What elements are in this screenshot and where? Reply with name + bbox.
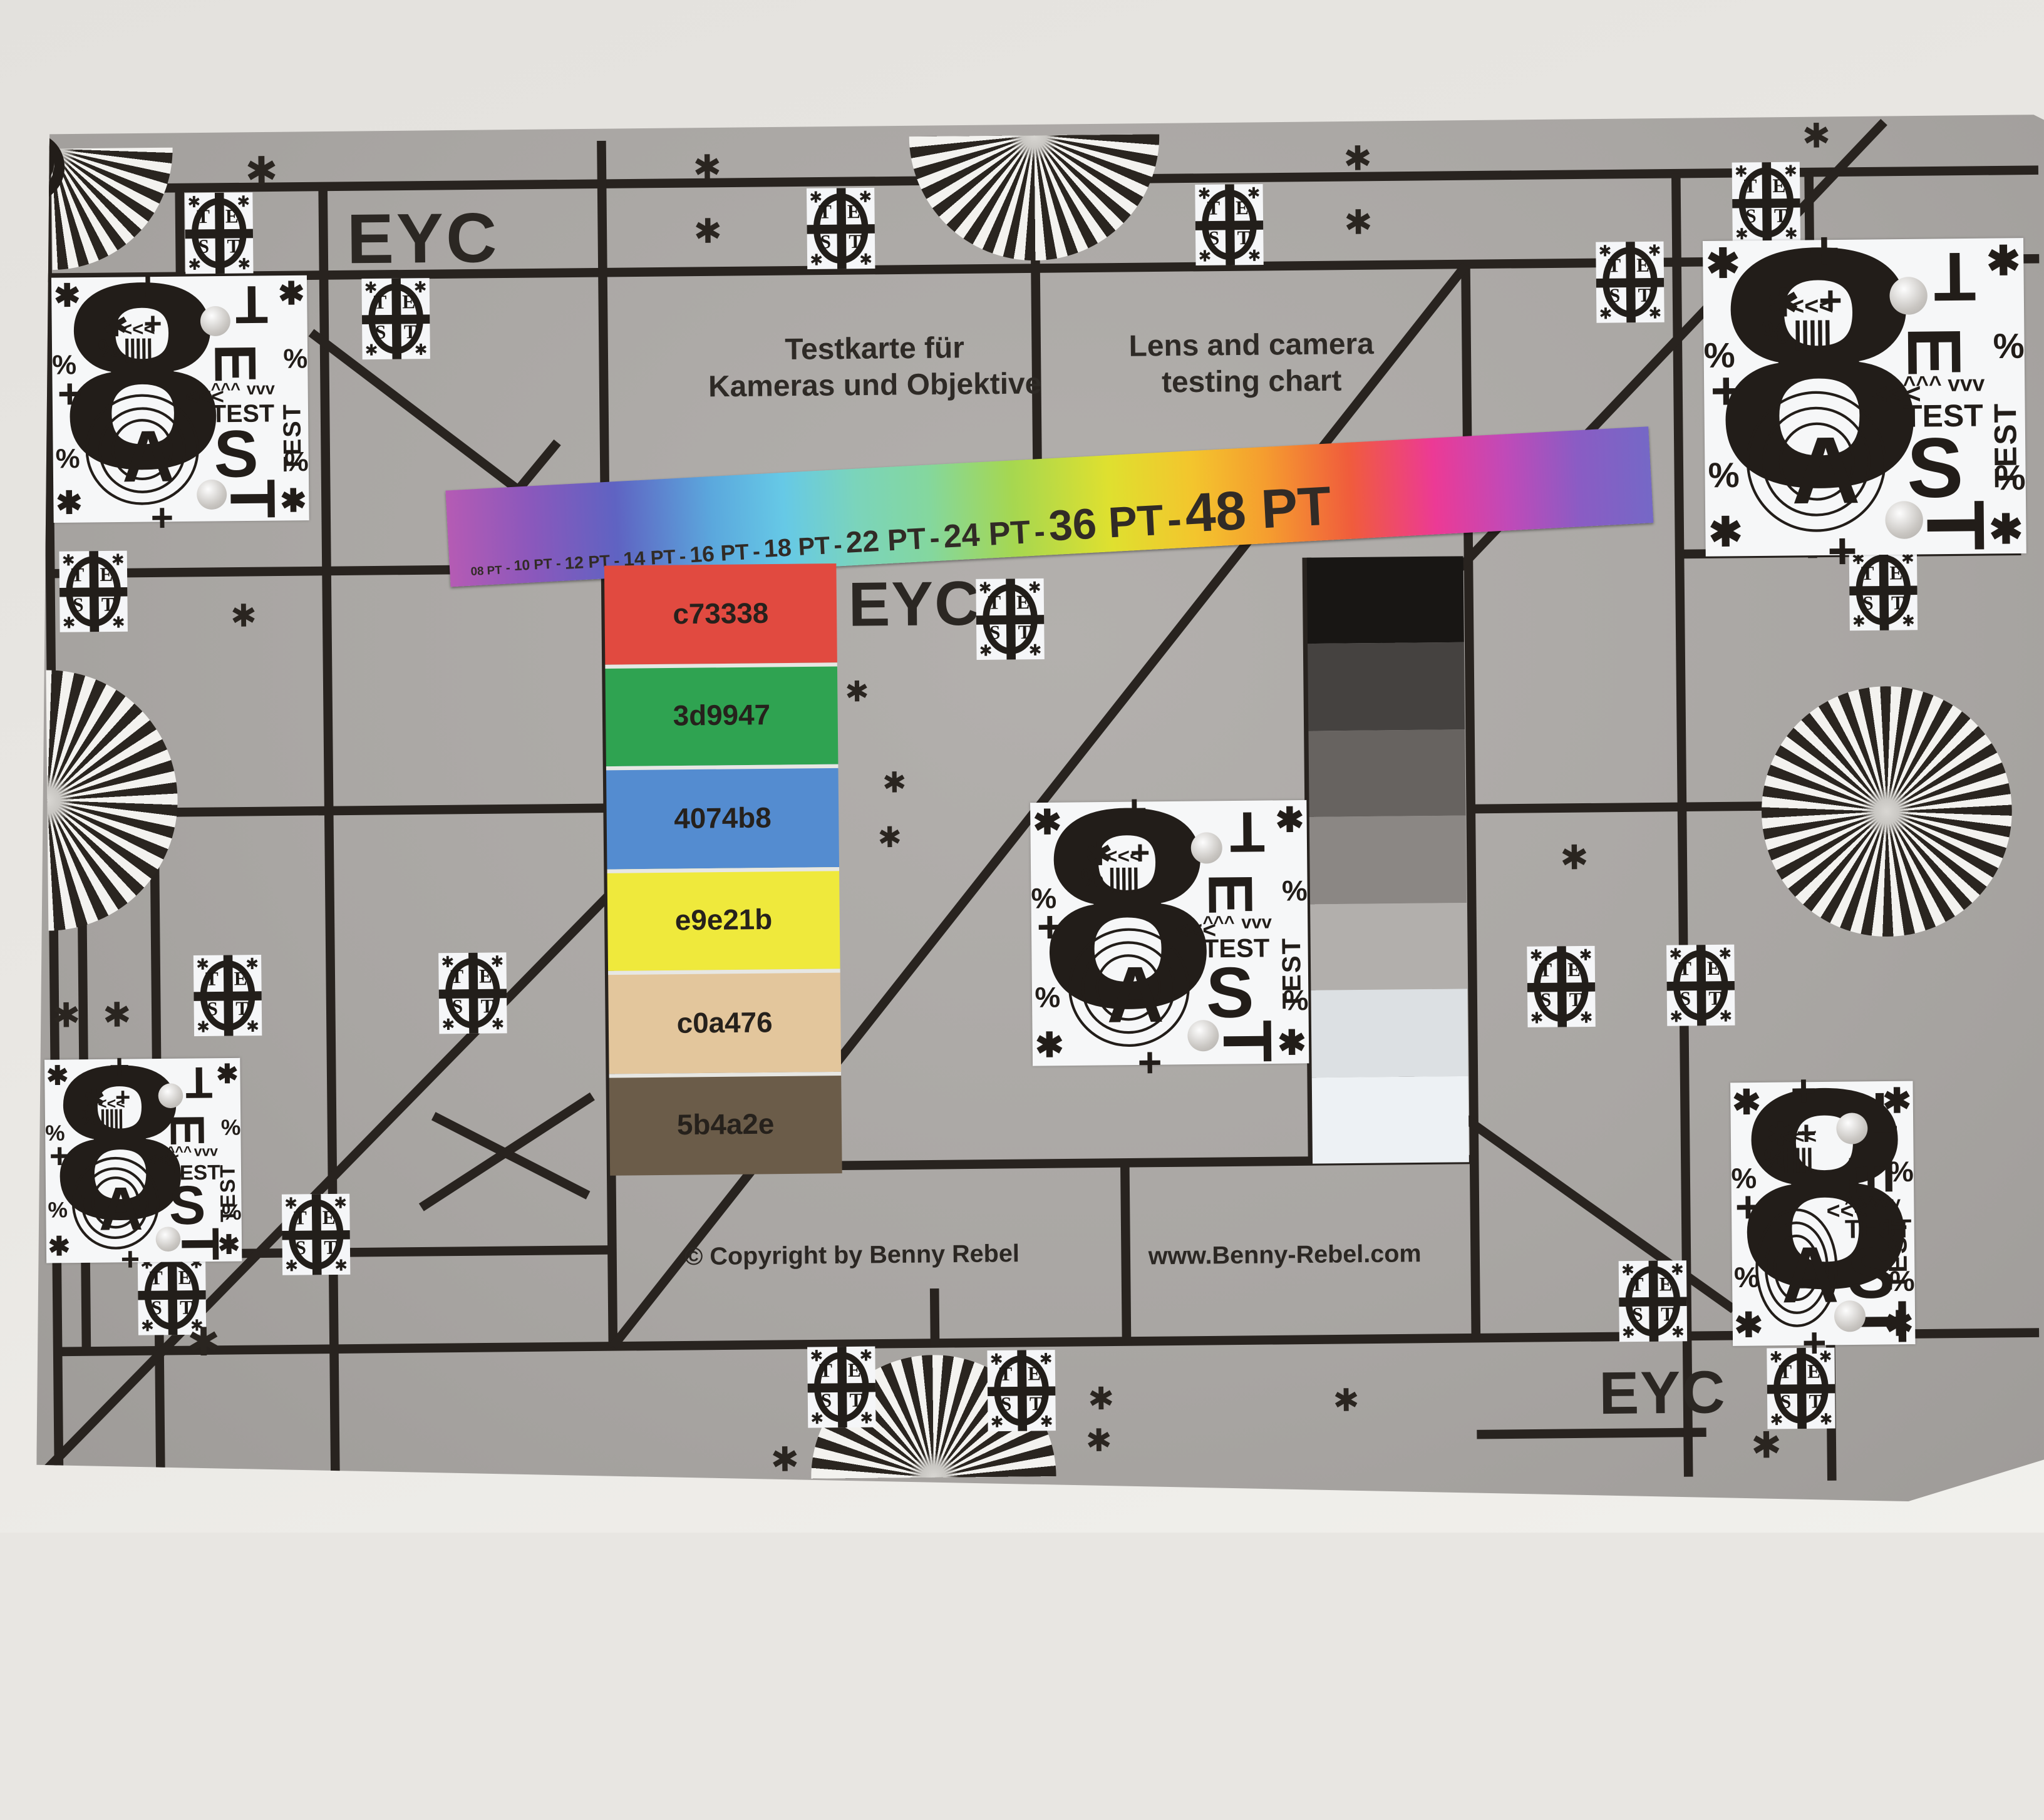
block-percent-left2: % <box>1035 982 1060 1016</box>
block-silver-dot <box>1885 501 1923 539</box>
test-target-circle: ✱✱✱✱TEST <box>194 955 262 1036</box>
block-chevrons-down: vvv <box>1241 911 1272 932</box>
block-plus-top: + <box>1790 1066 1817 1118</box>
tile-letter-e: E <box>848 1361 861 1384</box>
tile-letter-e: E <box>1636 256 1649 279</box>
block-column-e: E <box>1891 326 1978 378</box>
tile-letter-s: S <box>1780 1392 1792 1415</box>
grayscale-step-wedge <box>1307 556 1469 1163</box>
title-german: Testkarte für Kameras und Objektive <box>697 328 1052 404</box>
block-chevrons-down: vvv <box>247 379 275 399</box>
website-text: www.Benny-Rebel.com <box>1115 1240 1455 1272</box>
block-column-t: T <box>235 273 269 334</box>
tile-asterisk: ✱ <box>490 954 503 969</box>
block-plus-bottom: + <box>120 1242 140 1280</box>
tile-letter-e: E <box>847 202 860 225</box>
block-corner-asterisk: ✱ <box>1277 1023 1306 1064</box>
pt-size-separator: - <box>752 542 760 562</box>
tile-letter-e: E <box>225 207 239 229</box>
block-corner-asterisk: ✱ <box>48 1230 70 1263</box>
grayscale-step <box>1311 989 1468 1077</box>
tile-letter-s: S <box>452 997 463 1020</box>
tile-letter-e: E <box>1028 1364 1041 1387</box>
grayscale-step <box>1310 902 1467 990</box>
tile-letter-s: S <box>1632 1305 1643 1328</box>
asterisk-mark: ✱ <box>1086 1426 1112 1458</box>
pt-size-separator: - <box>679 548 686 566</box>
tile-cross-horizontal <box>1619 1296 1686 1306</box>
block-percent-left2: % <box>48 1198 68 1224</box>
tile-asterisk: ✱ <box>1671 1262 1684 1277</box>
test-target-circle: ✱✱✱✱TEST <box>1849 549 1918 630</box>
tile-letter-t: T <box>1678 959 1691 982</box>
color-swatch-c73338: c73338 <box>604 563 837 664</box>
block-percent-right: % <box>1282 874 1308 908</box>
tile-letter-e: E <box>1659 1275 1672 1297</box>
tile-letter-e: E <box>323 1208 336 1231</box>
tile-letter-t: T <box>1861 564 1874 587</box>
block-percent-right2: % <box>1994 459 2026 500</box>
pt-size-separator: - <box>505 563 510 575</box>
tile-letter-t: T <box>1778 1362 1792 1385</box>
tile-asterisk: ✱ <box>334 1195 347 1211</box>
test-pattern-block: 8✱%<<<+|||||A<<<T+E^^^vvvTESTST+TEST✱✱✱✱… <box>51 275 309 523</box>
tile-letter-t2: T <box>1030 1394 1043 1417</box>
block-silver-dot <box>200 306 230 336</box>
block-silver-dot <box>1187 1019 1219 1051</box>
tile-letter-t2: T <box>404 322 417 345</box>
block-corner-asterisk: ✱ <box>1885 1304 1914 1345</box>
block-bars: ||||| <box>1108 865 1138 895</box>
tile-letter-t: T <box>819 1361 832 1384</box>
tile-letter-e: E <box>1236 198 1249 221</box>
tile-cross-horizontal <box>362 314 430 324</box>
tile-cross-horizontal <box>808 1382 875 1392</box>
tile-letter-t2: T <box>1638 286 1651 309</box>
block-plus-left: + <box>1710 361 1742 422</box>
pt-size-label: 24 PT <box>942 518 1031 552</box>
color-swatch-4074b8: 4074b8 <box>606 764 839 869</box>
block-column-e: E <box>159 1114 214 1147</box>
block-column-t: T <box>185 1056 213 1108</box>
title-english: Lens and camera testing chart <box>1088 325 1415 401</box>
tile-letter-t: T <box>1631 1275 1644 1298</box>
asterisk-mark: ✱ <box>1343 141 1372 176</box>
siemens-star-fan <box>1760 685 2013 937</box>
block-percent-right: % <box>1888 1154 1914 1189</box>
test-target-circle: ✱✱✱✱TEST <box>1666 945 1735 1026</box>
grayscale-step <box>1308 729 1465 818</box>
block-plus-left: + <box>49 1137 70 1178</box>
tile-cross-horizontal <box>1667 980 1735 990</box>
block-percent: % <box>1080 865 1104 895</box>
tile-letter-t: T <box>150 1268 163 1291</box>
swatch-hex-label: 5b4a2e <box>677 1108 775 1143</box>
asterisk-mark: ✱ <box>693 214 722 249</box>
tile-letter-t2: T <box>101 595 115 618</box>
tile-letter-t: T <box>818 202 832 225</box>
swatch-hex-label: e9e21b <box>675 903 773 938</box>
block-letter-a: A <box>1781 1229 1839 1321</box>
pt-size-separator: - <box>1166 500 1182 540</box>
eyc-label-bottom-right: EYC <box>1599 1357 1727 1428</box>
asterisk-mark: ✱ <box>877 823 902 852</box>
asterisk-mark: ✱ <box>1802 118 1831 153</box>
photo-of-test-chart: Testkarte für Kameras und Objektive Lens… <box>0 0 2044 1533</box>
test-target-circle: ✱✱✱✱TEST <box>807 1347 875 1428</box>
asterisk-mark: ✱ <box>103 998 132 1032</box>
tile-letter-t2: T <box>180 1298 193 1321</box>
tile-letter-t: T <box>197 207 210 230</box>
block-corner-asterisk: ✱ <box>1989 506 2023 553</box>
block-percent-right: % <box>1993 326 2025 367</box>
block-plus-top: + <box>109 1047 130 1087</box>
block-column-t: T <box>1229 798 1265 863</box>
tile-asterisk: ✱ <box>1028 580 1041 595</box>
asterisk-mark: ✱ <box>845 678 869 707</box>
block-corner-asterisk: ✱ <box>1276 800 1304 841</box>
pt-size-separator: - <box>1033 517 1046 547</box>
block-percent-right2: % <box>1283 984 1308 1019</box>
tile-letter-e: E <box>479 967 492 989</box>
block-silver-dot <box>1889 277 1927 315</box>
block-letter-a: A <box>1106 949 1164 1041</box>
block-chevrons-up: ^^^ <box>210 379 240 399</box>
tile-letter-s: S <box>1209 229 1220 251</box>
tile-letter-t2: T <box>849 1391 862 1414</box>
eyc-label-center: EYC <box>848 568 981 642</box>
grayscale-step <box>1308 643 1465 731</box>
tile-letter-t2: T <box>324 1238 337 1261</box>
tile-letter-t: T <box>450 967 463 990</box>
block-percent: % <box>80 1108 99 1132</box>
title-german-line2: Kameras und Objektive <box>698 364 1053 404</box>
tile-cross-horizontal <box>59 587 127 597</box>
test-target-circle: ✱✱✱✱TEST <box>1527 946 1595 1027</box>
pt-size-label: 18 PT <box>763 535 830 561</box>
block-corner-asterisk: ✱ <box>1734 1305 1763 1346</box>
block-corner-asterisk: ✱ <box>46 1059 68 1092</box>
tile-cross-horizontal <box>1849 585 1917 595</box>
block-corner-asterisk: ✱ <box>54 277 80 316</box>
block-plus-top: + <box>135 262 160 311</box>
block-plus-left: + <box>1036 902 1063 954</box>
block-chevrons-down: vvv <box>1870 1191 1901 1213</box>
tile-letter-s: S <box>375 323 386 346</box>
block-letter-a: A <box>121 414 175 499</box>
tile-cross-horizontal <box>1195 220 1263 230</box>
tile-asterisk: ✱ <box>1040 1351 1053 1367</box>
test-pattern-block: 8✱%<<<+|||||A<<<T+E^^^vvvTESTST+TEST✱✱✱✱… <box>1730 1081 1915 1346</box>
asterisk-mark: ✱ <box>245 153 278 193</box>
tile-letter-t2: T <box>1891 594 1904 616</box>
block-column-t2: T <box>1207 1019 1287 1062</box>
block-chevrons-up: ^^^ <box>1202 912 1234 933</box>
asterisk-mark: ✱ <box>882 769 907 798</box>
tile-letter-e: E <box>402 292 415 315</box>
asterisk-mark: ✱ <box>1344 205 1373 240</box>
block-corner-asterisk: ✱ <box>56 485 82 523</box>
test-target-circle: ✱✱✱✱TEST <box>1195 184 1263 265</box>
copyright-text: © Copyright by Benny Rebel <box>617 1240 1087 1273</box>
block-corner-asterisk: ✱ <box>1882 1081 1911 1122</box>
color-swatch-c0a476: c0a476 <box>608 969 841 1073</box>
tile-asterisk: ✱ <box>237 193 250 209</box>
block-chevrons-down: vvv <box>194 1144 218 1159</box>
lens-test-chart: Testkarte für Kameras und Objektive Lens… <box>0 0 2044 1533</box>
pt-size-separator: - <box>556 559 562 572</box>
pt-size-label: 10 PT <box>514 560 552 575</box>
pt-size-separator: - <box>929 525 940 552</box>
block-corner-asterisk: ✱ <box>1708 509 1743 556</box>
test-pattern-block: 8✱%<<<+|||||A<<<T+E^^^vvvTESTST+TEST✱✱✱✱… <box>1703 238 2026 557</box>
block-corner-asterisk: ✱ <box>216 1058 238 1091</box>
tile-letter-s: S <box>151 1298 162 1321</box>
tile-letter-t: T <box>1207 198 1220 221</box>
block-percent: % <box>98 336 120 365</box>
asterisk-mark: ✱ <box>1751 1427 1782 1464</box>
block-plus-left: + <box>1735 1183 1761 1234</box>
tile-letter-t2: T <box>235 999 249 1022</box>
pt-size-separator: - <box>834 535 843 557</box>
asterisk-mark: ✱ <box>1088 1384 1114 1416</box>
asterisk-mark: ✱ <box>230 602 257 633</box>
block-percent-left2: % <box>1734 1262 1760 1296</box>
swatch-hex-label: 3d9947 <box>673 699 771 734</box>
tile-letter-s: S <box>989 623 1001 645</box>
tile-letter-s: S <box>1862 594 1874 617</box>
tile-letter-s: S <box>295 1238 306 1261</box>
test-target-circle: ✱✱✱✱TEST <box>59 551 127 632</box>
block-corner-asterisk: ✱ <box>1732 1082 1761 1123</box>
asterisk-mark: ✱ <box>187 1324 220 1364</box>
test-target-circle: ✱✱✱✱TEST <box>361 278 430 359</box>
tile-letter-s: S <box>821 1391 832 1414</box>
asterisk-mark: ✱ <box>693 150 721 185</box>
color-swatch-5b4a2e: 5b4a2e <box>609 1071 842 1176</box>
block-bars: ||||| <box>123 336 152 364</box>
block-plus-bottom: + <box>150 497 173 542</box>
tile-letter-s: S <box>73 595 84 618</box>
tile-letter-e: E <box>178 1268 191 1291</box>
test-pattern-block: 8✱%<<<+|||||A<<<T+E^^^vvvTESTST+TEST✱✱✱✱… <box>1030 800 1309 1066</box>
grayscale-step <box>1312 1076 1469 1164</box>
grayscale-step <box>1309 816 1467 904</box>
tile-asterisk: ✱ <box>414 279 427 295</box>
pt-size-label: 16 PT <box>689 542 750 565</box>
block-plus-top: + <box>1121 786 1147 837</box>
block-bars: ||||| <box>1793 316 1830 352</box>
swatch-hex-label: 4074b8 <box>674 801 772 836</box>
tile-letter-t2: T <box>1661 1305 1674 1327</box>
block-chevrons-down: vvv <box>1948 371 1985 397</box>
block-plus-bottom: + <box>1802 1319 1827 1367</box>
tile-asterisk: ✱ <box>859 189 872 205</box>
block-corner-asterisk: ✱ <box>280 483 306 521</box>
block-column-e: E <box>1193 873 1265 916</box>
asterisk-mark: ✱ <box>1333 1386 1360 1417</box>
tile-letter-t2: T <box>1237 229 1251 251</box>
tile-letter-t: T <box>1539 960 1552 983</box>
test-target-circle: ✱✱✱✱TEST <box>1619 1260 1687 1342</box>
swatch-hex-label: c73338 <box>673 597 768 632</box>
block-percent: % <box>1761 316 1789 353</box>
block-percent-right: % <box>283 344 307 375</box>
block-corner-asterisk: ✱ <box>1986 238 2021 285</box>
block-column-t: T <box>1934 235 1977 316</box>
asterisk-mark: ✱ <box>52 998 81 1032</box>
test-pattern-block: 8✱%<<<+|||||A<<<T+E^^^vvvTESTST+TEST✱✱✱✱… <box>44 1058 242 1263</box>
tile-letter-s: S <box>1609 286 1621 309</box>
tile-cross-horizontal <box>988 1386 1055 1396</box>
title-german-line1: Testkarte für <box>697 328 1052 368</box>
tile-letter-t: T <box>988 593 1001 615</box>
block-column-e: E <box>201 344 269 384</box>
pt-size-label: 48 PT <box>1184 481 1332 538</box>
test-target-circle: ✱✱✱✱TEST <box>807 188 875 269</box>
block-corner-asterisk: ✱ <box>1035 1026 1064 1066</box>
block-percent-right2: % <box>1889 1265 1915 1300</box>
block-percent-left2: % <box>1708 455 1740 496</box>
tile-asterisk: ✱ <box>1579 947 1592 963</box>
tile-letter-t2: T <box>1809 1392 1822 1414</box>
block-plus-top: + <box>1809 221 1840 282</box>
block-percent-left2: % <box>56 444 80 475</box>
tile-asterisk: ✱ <box>859 1348 872 1364</box>
tile-letter-t: T <box>71 565 84 588</box>
chart-content: Testkarte für Kameras und Objektive Lens… <box>0 0 2044 1543</box>
tile-asterisk: ✱ <box>245 956 259 972</box>
pt-size-label: 36 PT <box>1048 501 1164 545</box>
block-letter-a: A <box>1791 416 1861 525</box>
block-plus-bottom: + <box>1137 1039 1162 1087</box>
tile-letter-t: T <box>1608 256 1621 279</box>
tile-letter-e: E <box>1016 593 1030 615</box>
eyc-label-top-left: EYC <box>346 198 500 280</box>
block-chevrons-up: ^^^ <box>1902 371 1941 398</box>
block-percent-right2: % <box>284 447 309 478</box>
tile-cross-horizontal <box>138 1290 205 1300</box>
pt-size-label: 22 PT <box>845 525 927 557</box>
tile-letter-e: E <box>234 969 247 992</box>
block-letter-a: A <box>98 1173 143 1245</box>
tile-letter-t: T <box>205 970 219 992</box>
tile-cross-horizontal <box>282 1230 349 1240</box>
title-english-line1: Lens and camera <box>1088 325 1415 364</box>
tile-cross-horizontal <box>807 224 875 234</box>
tile-letter-t2: T <box>1018 623 1031 645</box>
tile-asterisk: ✱ <box>1247 185 1260 201</box>
tile-cross-horizontal <box>1767 1384 1835 1394</box>
color-swatch-3d9947: 3d9947 <box>605 662 838 766</box>
tile-letter-t: T <box>999 1365 1012 1387</box>
asterisk-mark: ✱ <box>1560 840 1589 875</box>
test-target-circle: ✱✱✱✱TEST <box>1596 242 1664 323</box>
block-corner-asterisk: ✱ <box>1706 240 1740 287</box>
tile-cross-horizontal <box>439 989 507 999</box>
tile-asterisk: ✱ <box>1784 163 1797 179</box>
block-percent-right: % <box>221 1115 241 1141</box>
swatch-hex-label: c0a476 <box>676 1005 772 1041</box>
tile-letter-t: T <box>373 293 386 316</box>
tile-letter-e: E <box>1889 563 1902 586</box>
tile-letter-s: S <box>1001 1395 1012 1417</box>
tile-letter-t2: T <box>849 232 862 255</box>
color-swatch-e9e21b: e9e21b <box>607 866 840 971</box>
tile-asterisk: ✱ <box>111 552 125 568</box>
tile-letter-s: S <box>1541 990 1552 1013</box>
asterisk-mark: ✱ <box>770 1442 799 1477</box>
color-swatch-column: c733383d99474074b8e9e21bc0a4765b4a2e <box>604 563 842 1176</box>
tile-cross-horizontal <box>194 990 261 1000</box>
grayscale-step <box>1307 556 1464 644</box>
block-bars: ||||| <box>1782 1145 1812 1175</box>
tile-letter-t2: T <box>1569 990 1582 1013</box>
block-bars: ||||| <box>100 1108 123 1132</box>
test-target-circle: ✱✱✱✱TEST <box>282 1194 350 1275</box>
block-chevrons-up: ^^^ <box>167 1144 192 1159</box>
test-target-circle: ✱✱✱✱TEST <box>987 1350 1055 1431</box>
tile-cross-horizontal <box>1527 982 1595 992</box>
tile-letter-s: S <box>1680 989 1691 1012</box>
tile-letter-e: E <box>1567 960 1581 983</box>
tile-letter-t2: T <box>480 997 493 1019</box>
pt-size-label: 12 PT <box>564 554 610 572</box>
tile-letter-e: E <box>1707 959 1720 982</box>
tile-letter-t2: T <box>227 237 240 259</box>
tile-letter-s: S <box>820 232 831 255</box>
block-corner-asterisk: ✱ <box>1033 803 1061 843</box>
tile-asterisk: ✱ <box>1718 946 1732 962</box>
block-corner-asterisk: ✱ <box>218 1229 240 1262</box>
tile-letter-t: T <box>294 1208 307 1231</box>
test-target-circle: ✱✱✱✱TEST <box>976 578 1044 660</box>
tile-asterisk: ✱ <box>1648 243 1661 259</box>
block-plus-left: + <box>58 371 83 419</box>
block-plus-bottom: + <box>1827 523 1857 581</box>
block-corner-asterisk: ✱ <box>278 275 304 314</box>
tile-cross-horizontal <box>1596 277 1664 287</box>
tile-letter-s: S <box>207 999 218 1022</box>
block-silver-dot <box>197 480 227 510</box>
title-english-line2: testing chart <box>1088 361 1415 401</box>
pt-size-label: 08 PT <box>470 565 502 577</box>
block-percent-right2: % <box>222 1200 242 1226</box>
tile-letter-t2: T <box>1708 989 1721 1012</box>
tile-letter-e: E <box>100 565 113 588</box>
block-silver-dot <box>158 1083 183 1108</box>
tile-cross-horizontal <box>976 614 1044 624</box>
test-target-circle: ✱✱✱✱TEST <box>438 952 507 1034</box>
